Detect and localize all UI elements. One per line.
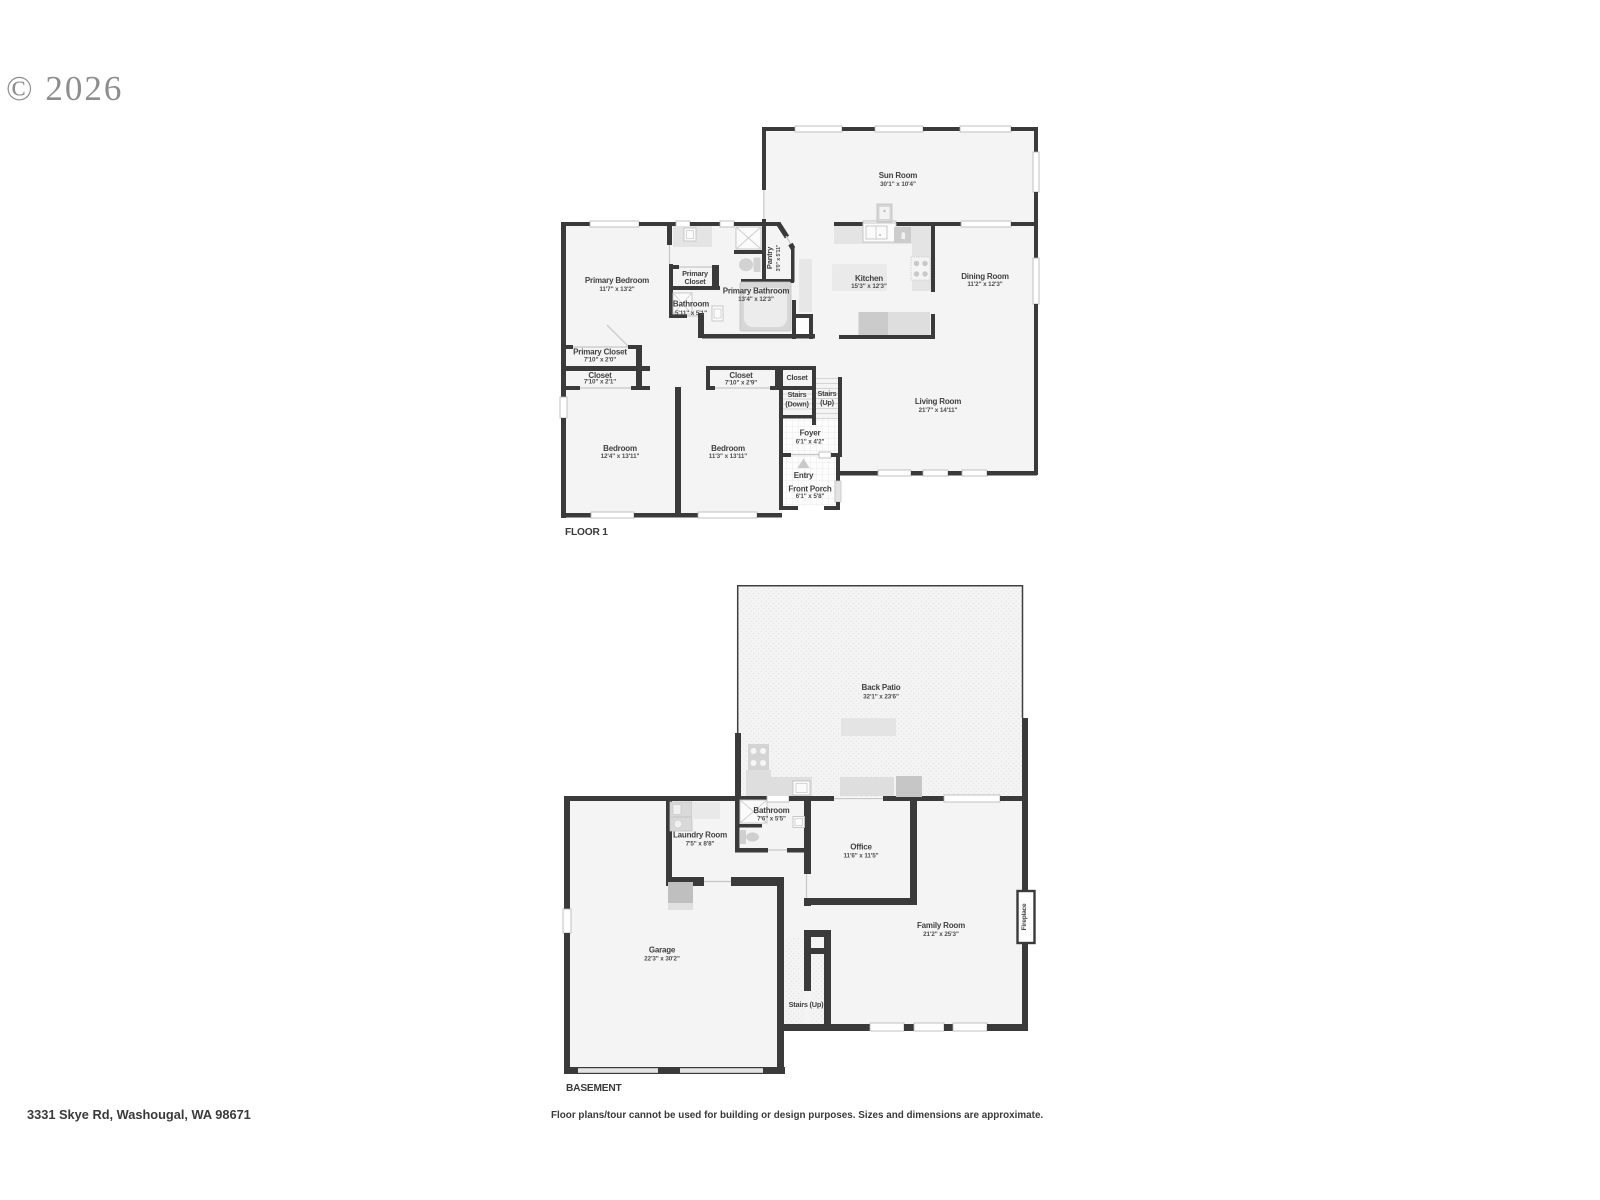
svg-text:BASEMENT: BASEMENT	[566, 1083, 623, 1094]
svg-text:12'4" x 13'11": 12'4" x 13'11"	[601, 453, 640, 460]
svg-text:5'11" x 5'1": 5'11" x 5'1"	[675, 310, 707, 317]
svg-text:3331 Skye Rd, Washougal, WA 98: 3331 Skye Rd, Washougal, WA 98671	[27, 1107, 251, 1122]
svg-text:7'10" x 2'0": 7'10" x 2'0"	[584, 356, 616, 363]
svg-text:Kitchen: Kitchen	[855, 274, 883, 283]
svg-text:Closet: Closet	[786, 373, 808, 382]
svg-text:Stairs: Stairs	[787, 390, 806, 399]
svg-text:15'3" x 12'3": 15'3" x 12'3"	[851, 283, 887, 290]
svg-text:(Up): (Up)	[820, 398, 835, 407]
svg-text:11'2" x 12'3": 11'2" x 12'3"	[967, 281, 1002, 288]
svg-text:11'7" x 13'2": 11'7" x 13'2"	[599, 286, 634, 293]
svg-text:© 2026: © 2026	[6, 69, 123, 108]
svg-text:32'1" x 23'6": 32'1" x 23'6"	[863, 694, 899, 701]
svg-text:6'1" x 4'2": 6'1" x 4'2"	[796, 439, 825, 446]
svg-text:Bedroom: Bedroom	[603, 444, 637, 453]
svg-text:Bathroom: Bathroom	[673, 300, 709, 309]
svg-text:Dining Room: Dining Room	[961, 272, 1009, 281]
svg-text:Floor plans/tour cannot be use: Floor plans/tour cannot be used for buil…	[551, 1110, 1043, 1121]
svg-text:7'10" x 2'9": 7'10" x 2'9"	[725, 379, 757, 386]
svg-text:11'6" x 11'5": 11'6" x 11'5"	[844, 853, 879, 860]
svg-text:Fireplace: Fireplace	[1021, 903, 1028, 930]
svg-text:7'6" x 5'5": 7'6" x 5'5"	[757, 816, 786, 823]
svg-text:Pantry: Pantry	[765, 246, 774, 269]
svg-text:Stairs: Stairs	[817, 389, 836, 398]
svg-text:(Down): (Down)	[785, 400, 809, 409]
svg-text:Bathroom: Bathroom	[753, 806, 789, 815]
svg-text:13'4" x 12'3": 13'4" x 12'3"	[738, 296, 774, 303]
svg-text:Stairs (Up): Stairs (Up)	[789, 1000, 824, 1009]
svg-text:Foyer: Foyer	[800, 429, 821, 438]
svg-text:Back Patio: Back Patio	[862, 683, 901, 692]
svg-text:Closet: Closet	[684, 277, 706, 286]
svg-text:6'1" x 5'8": 6'1" x 5'8"	[796, 493, 825, 500]
svg-text:FLOOR 1: FLOOR 1	[565, 527, 608, 538]
svg-text:21'7" x 14'11": 21'7" x 14'11"	[919, 407, 958, 414]
svg-text:Laundry Room: Laundry Room	[673, 831, 727, 840]
svg-text:Family Room: Family Room	[917, 921, 965, 930]
svg-text:Office: Office	[850, 843, 872, 852]
svg-text:Primary Bathroom: Primary Bathroom	[723, 287, 790, 296]
svg-text:7'10" x 2'1": 7'10" x 2'1"	[584, 379, 616, 386]
svg-text:22'3" x 30'2": 22'3" x 30'2"	[644, 956, 680, 963]
svg-text:3'0" x 5'11": 3'0" x 5'11"	[776, 244, 782, 271]
svg-text:Primary Closet: Primary Closet	[573, 347, 627, 356]
svg-text:7'5" x 8'8": 7'5" x 8'8"	[686, 841, 715, 848]
svg-text:Garage: Garage	[649, 945, 676, 954]
svg-text:Bedroom: Bedroom	[711, 444, 745, 453]
svg-text:21'2" x 25'3": 21'2" x 25'3"	[923, 931, 959, 938]
svg-text:30'1" x 10'4": 30'1" x 10'4"	[880, 181, 916, 188]
svg-text:11'3" x 13'11": 11'3" x 13'11"	[709, 453, 748, 460]
svg-text:Entry: Entry	[794, 471, 814, 480]
svg-text:Living Room: Living Room	[915, 397, 961, 406]
svg-text:Sun Room: Sun Room	[879, 171, 917, 180]
svg-text:Primary Bedroom: Primary Bedroom	[585, 276, 649, 285]
